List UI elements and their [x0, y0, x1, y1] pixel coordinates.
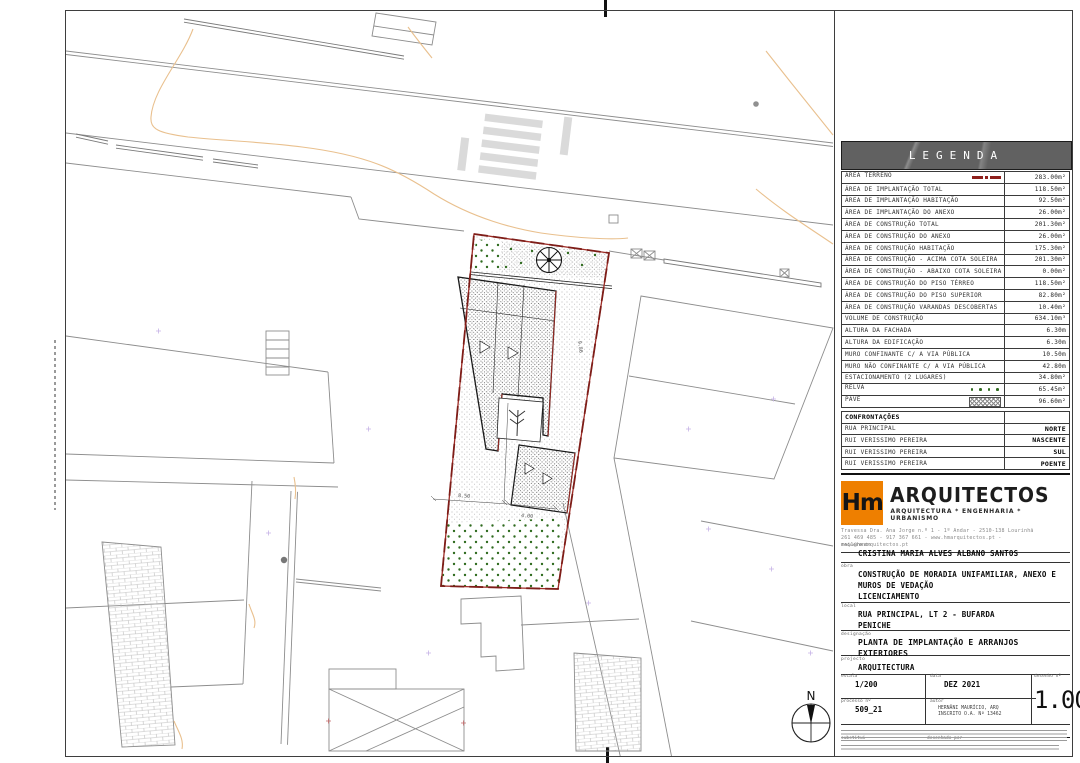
confrontacao-row: RUI VERISSIMO PEREIRASUL: [842, 446, 1070, 458]
obra-line2: MUROS DE VEDAÇÃO: [841, 580, 1070, 591]
desenho-label: desenho nº: [1032, 674, 1071, 679]
fine-print: [841, 728, 1070, 752]
legend-row: MURO CONFINANTE C/ A VIA PÚBLICA10.50m: [842, 348, 1070, 360]
crosswalk: [457, 114, 572, 180]
legend-row: PAVÊ96.60m²: [842, 396, 1070, 408]
escala-cell: escala 1/200: [841, 674, 925, 699]
dim-4-00: 4.00: [521, 513, 533, 520]
section-designacao: designação PLANTA DE IMPLANTAÇÃO E ARRAN…: [841, 631, 1070, 656]
fine-print-lines: [841, 730, 1067, 741]
requerente-value: CRISTINA MARIA ALVES ALBANO SANTOS: [841, 548, 1070, 559]
confrontacao-row: RUA PRINCIPALNORTE: [842, 423, 1070, 435]
legend-title-bar: LEGENDA: [841, 141, 1072, 170]
road-lines: [66, 51, 833, 260]
plot: 8.50 4.00 9.86: [431, 234, 612, 589]
legend-title: LEGENDA: [909, 149, 1004, 162]
section-local: local RUA PRINCIPAL, LT 2 - BUFARDA PENI…: [841, 603, 1070, 631]
boundary-walls: [76, 19, 821, 287]
grass-patch: [473, 239, 502, 272]
confrontacao-row: RUI VERISSIMO PEREIRANASCENTE: [842, 435, 1070, 447]
legend-row: ÁREA DE CONSTRUÇÃO VARANDAS DESCOBERTAS1…: [842, 301, 1070, 313]
margin-annotation: [54, 340, 56, 510]
processo-cell: processo nº 509_21: [841, 699, 925, 724]
section-requerente: requerente CRISTINA MARIA ALVES ALBANO S…: [841, 542, 1070, 563]
data-value: DEZ 2021: [930, 679, 1036, 691]
section-projecto: projecto ARQUITECTURA: [841, 656, 1070, 675]
firm-logo: Hm: [841, 481, 883, 525]
tree-icon: [537, 248, 562, 273]
legend-row: RELVA65.45m²: [842, 384, 1070, 396]
firm-tagline: ARQUITECTURA * ENGENHARIA * URBANISMO: [890, 508, 1070, 522]
escala-value: 1/200: [841, 679, 925, 691]
autor-cell: autor HERNÂNI MAURÍCIO, ARQ INSCRITO O.A…: [925, 699, 1036, 724]
projecto-value: ARQUITECTURA: [841, 662, 1070, 673]
legend-row: ÁREA DE CONSTRUÇÃO DO PISO SUPERIOR82.80…: [842, 289, 1070, 301]
firm-block: Hm ARQUITECTOS ARQUITECTURA * ENGENHARIA…: [841, 473, 1070, 529]
legend-row: ESTACIONAMENTO (2 LUGARES)34.80m²: [842, 372, 1070, 384]
confrontacoes-header-row: CONFRONTAÇÕES: [842, 412, 1070, 424]
legend-row: ÁREA DE CONSTRUÇÃO - ACIMA COTA SOLEIRA2…: [842, 254, 1070, 266]
data-cell: data DEZ 2021: [925, 674, 1036, 699]
confrontacao-row: RUI VERISSIMO PEREIRAPOENTE: [842, 458, 1070, 470]
desenho-cell: desenho nº 1.00: [1031, 674, 1071, 724]
legend-row: ÁREA DE CONSTRUÇÃO - ABAIXO COTA SOLEIRA…: [842, 266, 1070, 278]
legend-row: ÁREA DE IMPLANTAÇÃO TOTAL118.50m²: [842, 183, 1070, 195]
autor-label: autor: [930, 699, 1036, 704]
autor-line2: INSCRITO O.A. Nº 13462: [938, 712, 1036, 718]
north-label: N: [807, 689, 816, 703]
legend-row: ÁREA DE CONSTRUÇÃO HABITAÇÃO175.30m²: [842, 242, 1070, 254]
legend-row: ÁREA DE CONSTRUÇÃO DO PISO TÉRREO118.50m…: [842, 278, 1070, 290]
legend-row: VOLUME DE CONSTRUÇÃO634.10m³: [842, 313, 1070, 325]
neighbour-parcels: [66, 13, 833, 756]
grass-area: [441, 518, 563, 589]
pave-symbol: [969, 396, 1001, 407]
patio: [497, 398, 543, 442]
processo-value: 509_21: [841, 704, 925, 716]
titleblock-grid: escala 1/200 data DEZ 2021 processo nº 5…: [841, 674, 1070, 725]
site-plan-area: 8.50 4.00 9.86: [66, 11, 835, 756]
local-line1: RUA PRINCIPAL, LT 2 - BUFARDA: [841, 609, 1070, 620]
site-plan: 8.50 4.00 9.86: [66, 11, 834, 756]
desenho-number: 1.00: [1034, 686, 1070, 714]
fine-print-lines: [841, 745, 1059, 752]
obra-line1: CONSTRUÇÃO DE MORADIA UNIFAMILIAR, ANEXO…: [841, 569, 1070, 580]
local-line2: PENICHE: [841, 620, 1070, 631]
dim-8-50: 8.50: [458, 493, 470, 500]
legend-row: ÁREA DE IMPLANTAÇÃO HABITAÇÃO92.50m²: [842, 195, 1070, 207]
legend-row: MURO NÃO CONFINANTE C/ A VIA PÚBLICA42.8…: [842, 360, 1070, 372]
obra-line3: LICENCIAMENTO: [841, 591, 1070, 602]
terreno-symbol: [972, 172, 1001, 183]
firm-address-line1: Travessa Dra. Ana Jorge n.º 1 - 1º Andar…: [841, 528, 1070, 535]
firm-name: ARQUITECTOS: [890, 485, 1059, 505]
legend-row: ÁREA TERRENO283.00m²: [842, 172, 1070, 184]
legend-row: ALTURA DA FACHADA6.30m: [842, 325, 1070, 337]
legend-row: ÁREA DE CONSTRUÇÃO DO ANEXO26.00m²: [842, 230, 1070, 242]
north-arrow-icon: N: [792, 689, 830, 742]
legend-table: ÁREA TERRENO283.00m²ÁREA DE IMPLANTAÇÃO …: [841, 171, 1070, 408]
drawing-sheet: 8.50 4.00 9.86: [0, 0, 1080, 763]
legend-row: ÁREA DE CONSTRUÇÃO TOTAL201.30m²: [842, 219, 1070, 231]
section-obra: obra CONSTRUÇÃO DE MORADIA UNIFAMILIAR, …: [841, 563, 1070, 603]
legend-row: ALTURA DA EDIFICAÇÃO6.30m: [842, 337, 1070, 349]
confrontacoes-table: CONFRONTAÇÕESRUA PRINCIPALNORTERUI VERIS…: [841, 411, 1070, 470]
drawing-frame: 8.50 4.00 9.86: [65, 10, 1073, 757]
relva-symbol: [969, 384, 1001, 395]
legend-row: ÁREA DE IMPLANTAÇÃO DO ANEXO26.00m²: [842, 207, 1070, 219]
